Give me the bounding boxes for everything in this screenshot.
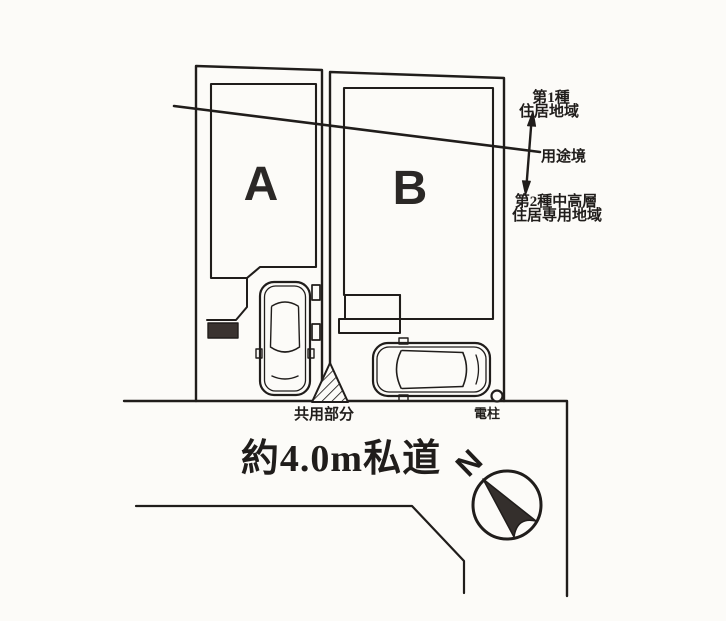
building-b-porch [345, 295, 400, 319]
shared-area-triangle [312, 363, 348, 402]
utility-pole-marker [492, 391, 503, 402]
building-a-entrance-step [207, 278, 247, 320]
zoning-boundary-label: 用途境 [541, 147, 586, 165]
road-label: 約4.0m私道 [241, 438, 441, 480]
road-bottom-edge [136, 506, 464, 593]
arrowhead-down [522, 181, 530, 195]
zoning-boundary-line [174, 106, 540, 152]
zoning-boundary-arrow [522, 111, 535, 195]
shared-area-label: 共用部分 [294, 405, 354, 423]
lot-a-gate-pier-upper [312, 285, 320, 300]
site-plan-page: N A B 第1種 住居地域 用途境 第2種中高層 住居専用地域 共用部分 電柱… [0, 0, 726, 621]
zone2-label-line2: 住居専用地域 [512, 206, 602, 224]
car-b-icon [373, 338, 490, 401]
building-b-porch-step [339, 319, 400, 333]
car-a-icon [256, 282, 314, 395]
utility-pole-label: 電柱 [474, 406, 500, 421]
lot-a-label: A [244, 158, 279, 211]
lot-a-gate-pier-lower [312, 324, 320, 340]
lot-b-label: B [393, 162, 428, 215]
compass-north-label: N [449, 443, 489, 484]
compass-needle [483, 479, 536, 537]
shared-area [312, 363, 348, 402]
compass-icon: N [449, 443, 541, 539]
building-a-porch-slab [208, 323, 238, 338]
site-plan-figure: N A B 第1種 住居地域 用途境 第2種中高層 住居専用地域 共用部分 電柱… [0, 0, 726, 621]
zone1-label-line2: 住居地域 [519, 102, 579, 120]
